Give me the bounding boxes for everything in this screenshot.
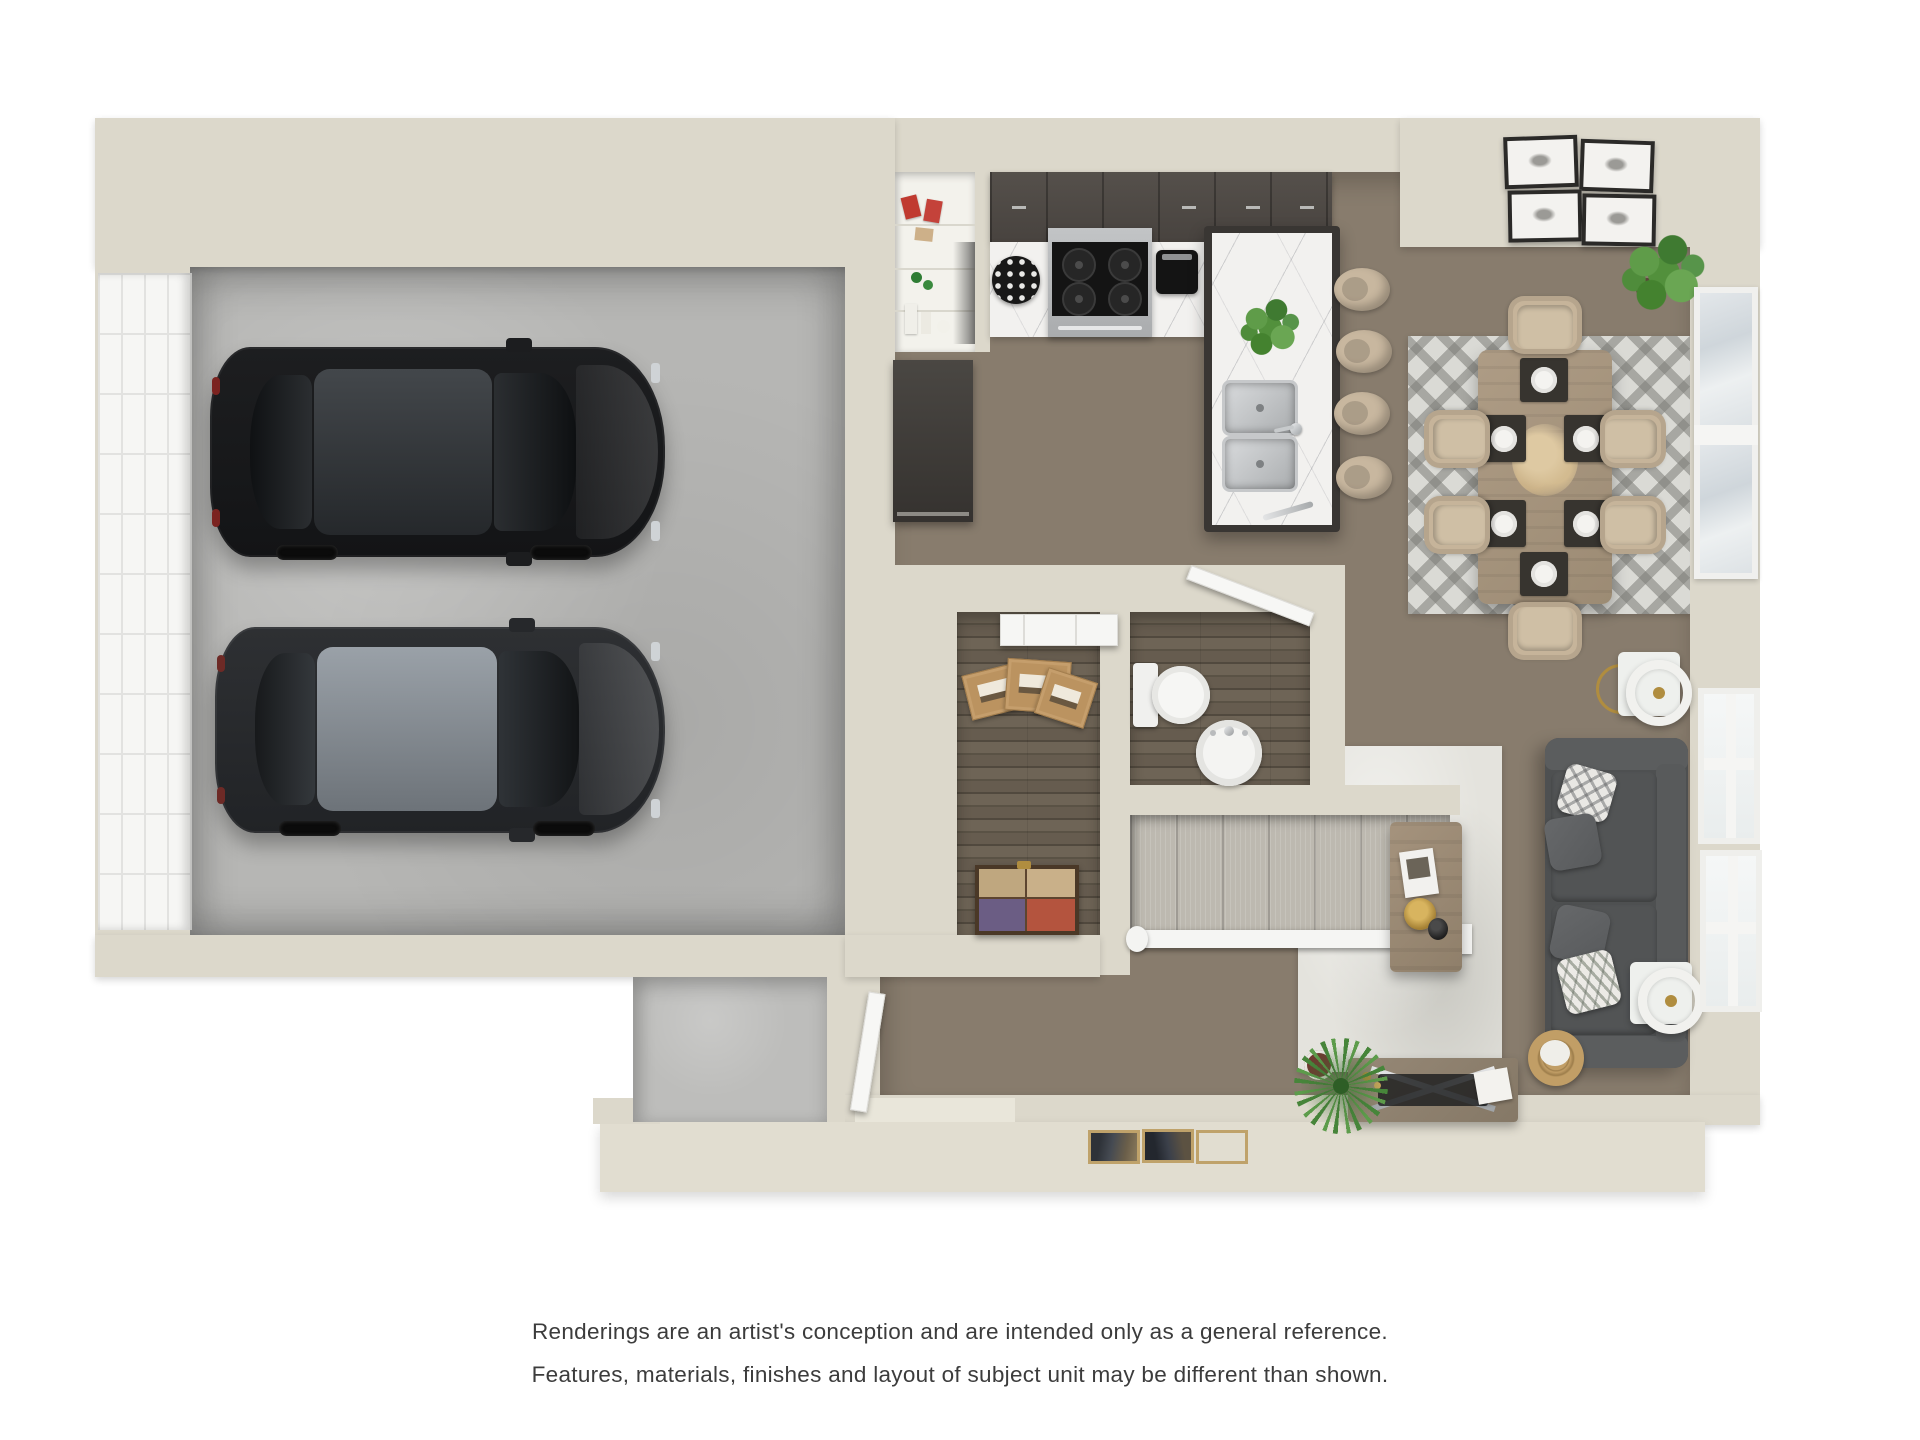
console-glass-shelf <box>1378 1074 1488 1106</box>
car-side-mirror <box>506 338 532 352</box>
car-hood-highlight <box>576 365 658 539</box>
doormat-panel <box>1196 1130 1248 1164</box>
wall-stoop-right <box>827 977 845 1122</box>
wine-rack <box>992 256 1040 304</box>
car-side-mirror <box>509 828 535 842</box>
dining-chair <box>1508 296 1582 354</box>
coffee-maker <box>1156 250 1198 294</box>
doormat-panel <box>1088 1130 1140 1164</box>
stair-newel-post <box>1126 926 1148 952</box>
car-charcoal-sedan <box>215 627 665 833</box>
cabinet-top-edge <box>897 512 969 516</box>
bar-stool <box>1336 456 1392 499</box>
disclaimer-line2: Features, materials, finishes and layout… <box>0 1353 1920 1396</box>
place-setting <box>1520 358 1568 402</box>
entry-plant <box>1294 1038 1388 1134</box>
magazine-cover-art <box>1406 857 1431 880</box>
car-headlight <box>651 521 660 541</box>
bar-stool <box>1334 392 1390 435</box>
wall-garage-bottom <box>95 935 845 977</box>
wall-bathroom-right <box>1310 565 1345 815</box>
pantry-small-box <box>914 227 933 242</box>
car-roof-glass <box>317 647 497 811</box>
woven-basket <box>1528 1030 1584 1086</box>
wall-closet-left <box>880 565 957 935</box>
car-roof-glass <box>314 369 492 535</box>
car-wheel <box>533 821 595 836</box>
car-hood-highlight <box>579 643 659 815</box>
wall-bathroom-bottom <box>1100 785 1460 815</box>
coffee-table <box>1390 822 1462 972</box>
car-wheel <box>530 545 592 560</box>
car-black-sedan <box>210 347 665 557</box>
sink-handle <box>1242 730 1248 736</box>
car-side-mirror <box>506 552 532 566</box>
car-headlight <box>651 642 660 661</box>
dining-chair <box>1600 496 1666 554</box>
disclaimer: Renderings are an artist's conception an… <box>0 1310 1920 1396</box>
bar-stool <box>1336 330 1392 373</box>
sink-handle <box>1210 730 1216 736</box>
pantry-shelf-edge <box>895 224 975 226</box>
wall-art-frame <box>1508 189 1583 242</box>
floor-plan-scene: Renderings are an artist's conception an… <box>0 0 1920 1440</box>
car-taillight <box>212 509 220 527</box>
wall-art-frame <box>1503 135 1579 190</box>
cabinet-handle <box>1300 206 1314 209</box>
dining-chair <box>1424 410 1490 468</box>
wall-pantry-right <box>975 118 990 352</box>
window-mullion <box>1694 425 1758 445</box>
wall-art-frame <box>1579 139 1655 194</box>
coffee-maker-top <box>1162 254 1192 260</box>
kitchen-island <box>1212 233 1332 525</box>
window-glass <box>1700 293 1752 425</box>
garage-ceiling-band <box>95 118 895 267</box>
place-setting <box>1520 552 1568 596</box>
table-lamp <box>1626 660 1692 726</box>
cereal-box <box>923 199 943 223</box>
dining-chair <box>1508 602 1582 660</box>
pantry-jar-white <box>937 320 950 333</box>
front-stoop-concrete <box>633 977 827 1122</box>
car-rear-window <box>255 653 315 805</box>
magazine <box>1399 848 1439 898</box>
toilet-bowl <box>1152 666 1210 724</box>
dining-window <box>1694 287 1758 579</box>
burner <box>1062 248 1096 282</box>
throw-pillow-gray <box>1543 812 1603 872</box>
sink-basin <box>1222 436 1298 492</box>
basket-blanket <box>1540 1040 1570 1066</box>
range-stove <box>1048 228 1152 337</box>
window-mullion <box>1726 694 1736 838</box>
window-glass <box>1700 445 1752 573</box>
envelope-card <box>1473 1067 1512 1104</box>
cabinet-handle <box>1012 206 1026 209</box>
burner <box>1108 248 1142 282</box>
garage-door <box>98 273 192 930</box>
dining-chair <box>1600 410 1666 468</box>
cereal-box <box>901 194 922 219</box>
living-window <box>1700 850 1762 1012</box>
closet-door <box>1000 614 1118 646</box>
car-headlight <box>651 799 660 818</box>
burner <box>1062 282 1096 316</box>
entry-threshold <box>855 1098 1015 1122</box>
doormat <box>1088 1128 1246 1162</box>
car-taillight <box>217 787 225 804</box>
pedestal-sink <box>1196 720 1262 786</box>
chest-clasp <box>1017 861 1031 869</box>
pantry-door-shadow <box>953 242 975 344</box>
car-windshield <box>494 373 576 531</box>
sink-faucet <box>1224 726 1234 736</box>
car-taillight <box>212 377 220 395</box>
car-taillight <box>217 655 225 672</box>
disclaimer-line1: Renderings are an artist's conception an… <box>0 1310 1920 1353</box>
window-mullion <box>1728 856 1738 1006</box>
pantry-closet <box>895 172 975 352</box>
pantry-jar-green <box>923 280 933 290</box>
cooktop <box>1052 242 1148 316</box>
pantry-bottle-white <box>921 312 931 334</box>
wall-closet-bottom <box>845 935 1100 977</box>
pantry-bottle-white <box>905 304 917 334</box>
car-wheel <box>276 545 338 560</box>
bar-stool <box>1334 268 1390 311</box>
decorative-chest <box>975 865 1079 935</box>
refrigerator-cabinet <box>893 360 973 522</box>
island-plant <box>1238 295 1300 363</box>
car-headlight <box>651 363 660 383</box>
black-vase <box>1428 918 1448 940</box>
table-lamp <box>1638 968 1704 1034</box>
living-window <box>1698 688 1760 844</box>
pantry-jar-green <box>911 272 922 283</box>
cabinet-handle <box>1182 206 1196 209</box>
car-windshield <box>499 651 579 807</box>
doormat-panel <box>1142 1129 1194 1163</box>
dining-chair <box>1424 496 1490 554</box>
car-wheel <box>279 821 341 836</box>
oven-handle <box>1058 326 1142 330</box>
car-side-mirror <box>509 618 535 632</box>
burner <box>1108 282 1142 316</box>
car-rear-window <box>250 375 312 529</box>
corner-plant <box>1618 230 1706 320</box>
cabinet-handle <box>1246 206 1260 209</box>
